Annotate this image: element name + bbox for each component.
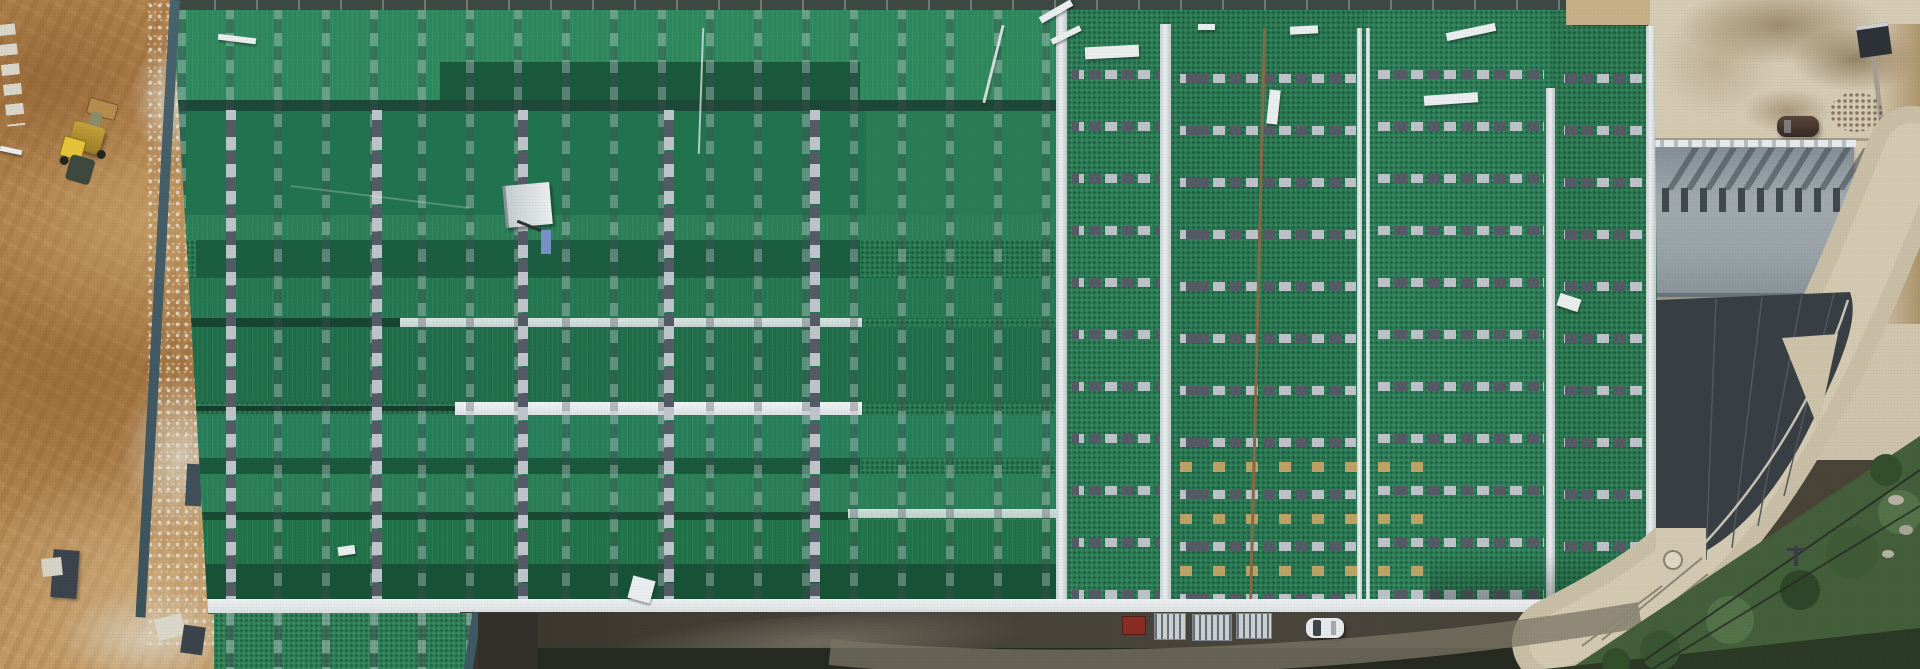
aerial-photo-construction-site [0,0,1920,669]
seam-rows-dark [1072,70,1160,604]
seam-columns-bold-dark [226,110,906,600]
pallet-stack [1236,613,1272,639]
seam-rows-dark [1564,74,1646,604]
gray-roof-top-edge [1650,140,1856,147]
pallet-stack [1192,614,1232,641]
bush [1780,570,1820,610]
ridge-cap [1366,28,1370,608]
building-top-edge [172,0,1566,10]
dirt-slope-right-edge [1872,24,1920,324]
power-pole [1794,546,1798,566]
power-pole-crossarm [1787,548,1805,551]
corner-apron [1656,528,1706,590]
bush [1706,596,1754,644]
power-line [1652,506,1920,669]
lower-left-roof-section [214,613,472,669]
gray-roof-eave-line [1654,293,1854,297]
rock [1882,550,1894,558]
dark-patch [478,613,538,669]
seam-rows-tan [1180,462,1430,594]
roof-access-platform [502,182,552,228]
rock [1899,525,1913,535]
green-roof-building [0,0,1920,669]
power-line [1642,470,1920,662]
roof-corner-shadow [1430,552,1656,600]
top-right-dirt-notch [1566,0,1650,25]
car-windshield [1313,620,1321,636]
ridge-cap [1357,28,1362,608]
loader-rear [65,154,96,186]
bush [1826,526,1878,578]
bush [1878,490,1920,534]
ridge-cap [1056,8,1067,608]
tank-circle [1664,551,1682,569]
ridge-cap [1546,88,1555,608]
footing-block-dark [180,625,206,656]
seam-columns-fine-dark [226,613,472,669]
red-truck-cab [1122,616,1146,635]
roof-vents-row [1662,188,1850,212]
pallet-stack [1154,613,1186,640]
footing-block-white [41,557,63,577]
rock [1888,495,1904,505]
white-plank [1198,24,1215,30]
roof-right-fascia [1646,26,1656,612]
waste-bin [1856,22,1892,58]
bottom-vegetation-shadow [520,648,1660,669]
mud-stain [1656,8,1776,118]
car-rear-window [1331,621,1336,635]
white-car [1306,618,1344,638]
platform-blue-tag [541,230,551,254]
rubble-pile [1830,92,1882,132]
roof-vent-shadows [1666,148,1878,190]
suv-windshield [1784,120,1791,133]
suv-car [1777,116,1819,137]
ridge-cap [1160,24,1171,608]
white-plank [1290,25,1318,34]
loader-wheel [96,149,107,160]
